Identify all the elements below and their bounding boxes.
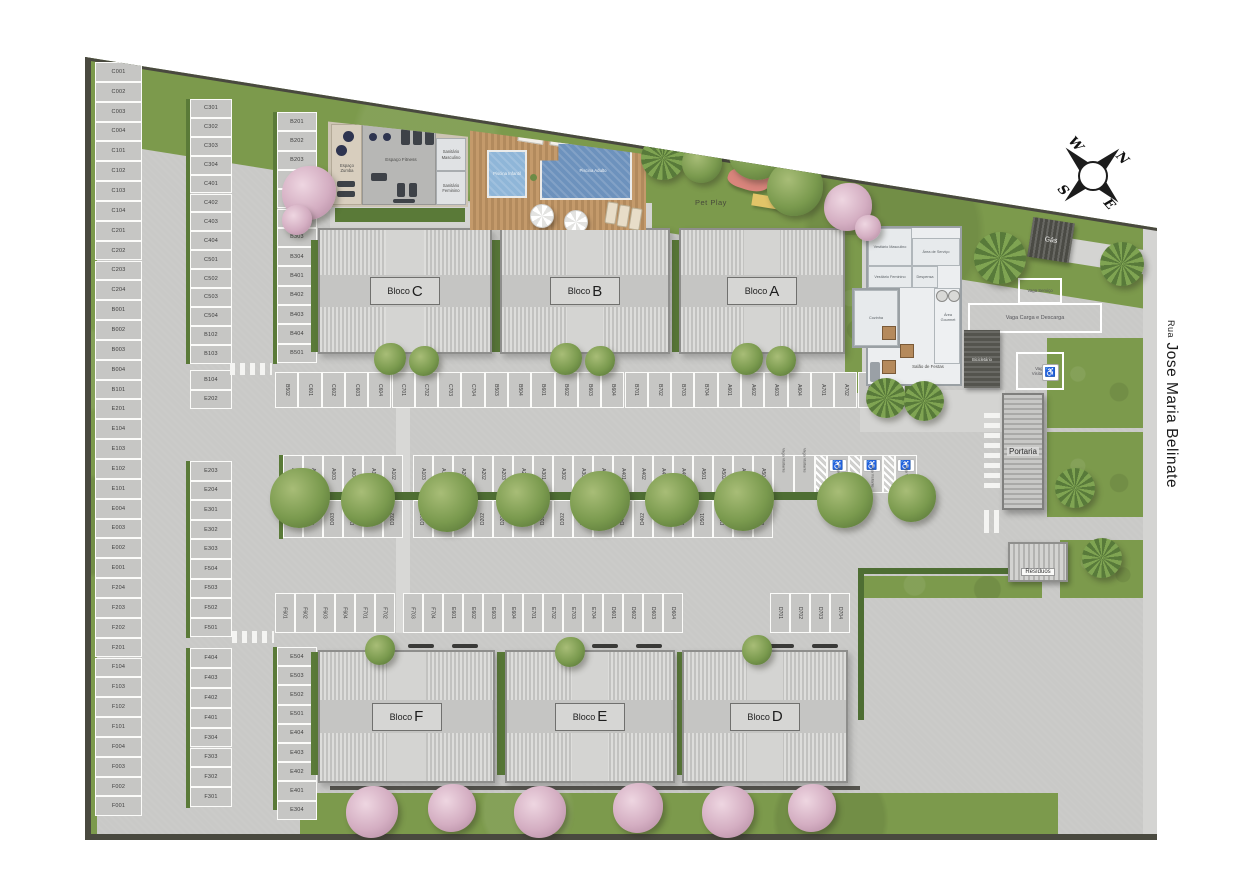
stall-label: E404: [290, 730, 304, 736]
changing-room-female: Vestiário Feminino: [868, 266, 912, 288]
entrance-canopy: [408, 644, 434, 648]
parking-stall: A701: [811, 372, 834, 408]
parking-stall: C002: [95, 82, 142, 102]
parking-stall: E201: [95, 399, 142, 419]
parking-stall: F503: [190, 579, 232, 599]
entrance-canopy: [592, 644, 618, 648]
stall-label: C503: [204, 294, 218, 300]
dining-table: [900, 344, 914, 358]
stall-label: F503: [204, 585, 217, 591]
stall-label: E403: [290, 750, 304, 756]
bike-rack-shed: Bicicletário: [964, 330, 1000, 388]
stall-label: B102: [204, 332, 218, 338]
stall-label: F302: [204, 774, 217, 780]
parking-stall: C504: [190, 307, 232, 326]
building-bloco-e: BlocoE: [505, 650, 675, 783]
parking-stall: E602: [463, 593, 483, 633]
parking-stall: F401: [190, 708, 232, 728]
parking-stall: E304: [277, 801, 317, 820]
stall-label: F601: [282, 607, 288, 618]
parking-stall: F504: [190, 559, 232, 579]
parking-stall: D704: [830, 593, 850, 633]
gas-shed: Gás: [1027, 217, 1075, 263]
parking-stall: B703: [671, 372, 694, 408]
crosswalk: [230, 363, 272, 375]
parking-stall: F701: [355, 593, 375, 633]
stall-label: F704: [430, 607, 436, 618]
exercise-bike: [383, 133, 391, 141]
stall-label: C604: [377, 384, 383, 396]
stall-label: C201: [112, 228, 126, 234]
stall-label: D703: [817, 607, 823, 619]
parking-stall: C501: [190, 250, 232, 269]
stall-label: E602: [470, 607, 476, 619]
parking-stall: C304: [190, 156, 232, 175]
stall-label: A003: [330, 468, 336, 480]
changing-room-female-label: Vestiário Feminino: [874, 275, 905, 280]
parking-stall: C403: [190, 212, 232, 231]
parking-stall: C004: [95, 122, 142, 142]
stall-label: B603: [587, 384, 593, 396]
stall-label: A701: [820, 384, 826, 396]
stall-label: B101: [112, 387, 126, 393]
retaining-edge: [330, 786, 860, 790]
parking-stall: F004: [95, 737, 142, 757]
parking-stall: F604: [335, 593, 355, 633]
stall-label: B001: [112, 307, 126, 313]
block-label-prefix: Bloco: [745, 286, 768, 296]
parking-stall: E202: [190, 390, 232, 410]
parking-stall: E104: [95, 419, 142, 439]
parking-stall: F704: [423, 593, 443, 633]
exercise-bike: [369, 133, 377, 141]
parking-stall: F304: [190, 728, 232, 748]
stall-label: E402: [290, 769, 304, 775]
crosswalk: [984, 510, 1004, 533]
stall-label: E501: [290, 711, 304, 717]
parking-stall: Vaga Visitante: [773, 455, 794, 493]
crosswalk: [232, 631, 274, 643]
visitor-stall-label: Vaga Visitante: [781, 448, 785, 473]
stall-label: A102: [390, 468, 396, 480]
parking-stall: C703: [438, 372, 461, 408]
parking-stall: E002: [95, 538, 142, 558]
kitchen-label: Cozinha: [869, 316, 883, 321]
block-label-prefix: Bloco: [387, 286, 410, 296]
parking-stall: B103: [190, 345, 232, 364]
stall-label: F002: [112, 784, 125, 790]
block-label-prefix: Bloco: [573, 712, 596, 722]
parking-stall: F602: [295, 593, 315, 633]
adult-pool-label: Piscina Adulto: [580, 168, 607, 173]
compass-rose: W N S E: [1040, 125, 1150, 220]
compass-circle: [1078, 161, 1108, 191]
parking-stall: B201: [277, 112, 317, 131]
stall-label: E204: [204, 487, 218, 493]
building-label-plate: BlocoD: [730, 703, 800, 731]
stall-label: C504: [204, 313, 218, 319]
stall-label: D202: [480, 513, 486, 525]
fitness-label: Espaço Fitness: [385, 157, 417, 163]
stall-label: F303: [204, 754, 217, 760]
stall-label: C003: [112, 109, 126, 115]
parking-stall: B701: [625, 372, 648, 408]
stall-label: B003: [112, 347, 126, 353]
parking-stall: F204: [95, 578, 142, 598]
stall-label: C202: [112, 248, 126, 254]
parking-stall: E701: [523, 593, 543, 633]
stall-label: B303: [290, 234, 304, 240]
stall-label: F103: [112, 684, 125, 690]
stall-label: D704: [837, 607, 843, 619]
street-name: Rua Jose Maria Belinate: [1162, 320, 1180, 488]
parking-stall: C103: [95, 181, 142, 201]
parking-stall: F404: [190, 648, 232, 668]
parking-stall: C003: [95, 102, 142, 122]
parking-stall: D603: [643, 593, 663, 633]
stall-label: C401: [204, 181, 218, 187]
block-label-prefix: Bloco: [390, 712, 413, 722]
palm-tree: [641, 136, 685, 180]
stall-label: E601: [450, 607, 456, 619]
stall-label: D102: [390, 513, 396, 525]
block-label-letter: F: [414, 708, 423, 725]
stall-label: A402: [640, 468, 646, 480]
stall-label: D602: [630, 607, 636, 619]
stall-label: A302: [560, 468, 566, 480]
building-bloco-c: BlocoC: [318, 228, 492, 354]
parking-stall: F003: [95, 757, 142, 777]
stall-label: E101: [112, 486, 126, 492]
parking-stall: F103: [95, 677, 142, 697]
stall-label: C104: [112, 208, 126, 214]
stall-label: F703: [410, 607, 416, 618]
stall-label: D402: [640, 513, 646, 525]
parking-stall: F603: [315, 593, 335, 633]
service-area-label: Área de Serviço: [922, 250, 949, 255]
parking-stall: C502: [190, 269, 232, 288]
restroom-female: Sanitário Feminino: [436, 171, 466, 205]
weight-machine: [409, 183, 417, 197]
parking-stall: F301: [190, 787, 232, 807]
palm-tree: [1100, 242, 1144, 286]
gym-equipment: [337, 181, 355, 187]
parking-stall: F001: [95, 796, 142, 816]
parking-stall: F104: [95, 658, 142, 678]
parking-stall: E702: [543, 593, 563, 633]
parking-stall: B102: [190, 326, 232, 345]
parking-stall: B002: [95, 320, 142, 340]
stall-label: C601: [307, 384, 313, 396]
block-label-prefix: Bloco: [568, 286, 591, 296]
stall-label: C703: [447, 384, 453, 396]
stall-label: B401: [290, 273, 304, 279]
perimeter-wall-left: [85, 57, 91, 840]
round-table: [936, 290, 948, 302]
stall-label: A501: [700, 468, 706, 480]
exercise-ball: [336, 145, 347, 156]
parking-stall: C701: [392, 372, 415, 408]
restroom-male: Sanitário Masculino: [436, 138, 466, 171]
parking-stall: F302: [190, 767, 232, 787]
gas-label: Gás: [1044, 236, 1058, 245]
stall-label: E203: [204, 468, 218, 474]
parking-stall: F702: [375, 593, 395, 633]
stall-label: B504: [517, 384, 523, 396]
building-label-plate: BlocoE: [555, 703, 625, 731]
stall-label: C204: [112, 287, 126, 293]
service-stall-label: Vaga Serviço: [1027, 288, 1052, 293]
stall-label: F603: [322, 607, 328, 618]
stall-label: E302: [204, 527, 218, 533]
parking-stall: B202: [277, 131, 317, 150]
parking-stall: C702: [415, 372, 438, 408]
parking-stall: C204: [95, 280, 142, 300]
service-parking-stall: Vaga Serviço: [1018, 278, 1062, 304]
hedge: [186, 648, 190, 808]
street-title: Jose Maria Belinate: [1163, 342, 1180, 488]
stall-label: E001: [112, 565, 126, 571]
stall-label: D302: [560, 513, 566, 525]
stall-label: B104: [204, 377, 218, 383]
parking-stall: C102: [95, 161, 142, 181]
stall-label: F203: [112, 605, 125, 611]
stall-label: E604: [510, 607, 516, 619]
building-label-plate: BlocoB: [550, 277, 620, 305]
stall-label: C402: [204, 200, 218, 206]
stall-label: E304: [290, 807, 304, 813]
parking-stall: F703: [403, 593, 423, 633]
parking-stall: D602: [623, 593, 643, 633]
exercise-ball: [343, 131, 354, 142]
weight-bench: [371, 173, 387, 181]
stall-label: F201: [112, 645, 125, 651]
parking-stall: D702: [790, 593, 810, 633]
palm-tree: [974, 232, 1026, 284]
stall-label: C403: [204, 219, 218, 225]
treadmill: [401, 129, 410, 145]
parking-stall: C601: [298, 372, 321, 408]
stall-label: E704: [590, 607, 596, 619]
visitor-accessible-stall: Vaga Visitante ♿: [1016, 352, 1064, 390]
block-label-letter: B: [592, 283, 602, 300]
parking-stall: B504: [508, 372, 531, 408]
parking-stall: E203: [190, 461, 232, 481]
pet-play-label: Pet Play: [695, 198, 727, 207]
stall-label: B404: [290, 331, 304, 337]
parking-stall: C401: [190, 175, 232, 194]
stall-label: F501: [204, 625, 217, 631]
visitor-stall-label: Vaga Visitante: [802, 448, 806, 473]
entrance-canopy: [636, 644, 662, 648]
parking-stall: A604: [788, 372, 811, 408]
stall-label: C501: [204, 257, 218, 263]
parking-stall: F601: [275, 593, 295, 633]
stall-label: E701: [530, 607, 536, 619]
crosswalk: [984, 410, 1000, 488]
stall-label: B004: [112, 367, 126, 373]
parking-stall: C503: [190, 288, 232, 307]
stall-label: A601: [726, 384, 732, 396]
parking-stall: C402: [190, 194, 232, 213]
stall-label: C102: [112, 168, 126, 174]
stall-label: E002: [112, 545, 126, 551]
parking-stall: C603: [345, 372, 368, 408]
stall-label: B304: [290, 254, 304, 260]
stall-label: D701: [777, 607, 783, 619]
service-area: Área de Serviço: [912, 238, 960, 266]
stall-label: D604: [670, 607, 676, 619]
stall-label: F502: [204, 605, 217, 611]
stall-label: F003: [112, 764, 125, 770]
pool-lounger: [628, 207, 642, 230]
parking-stall: E303: [190, 539, 232, 559]
stall-label: C004: [112, 128, 126, 134]
stall-label: F004: [112, 744, 125, 750]
stall-label: C602: [330, 384, 336, 396]
gatehouse: Portaria: [1002, 393, 1044, 510]
stall-label: F604: [342, 607, 348, 618]
stall-label: B704: [703, 384, 709, 396]
stall-label: A602: [750, 384, 756, 396]
parking-stall: F402: [190, 688, 232, 708]
stall-label: C002: [112, 89, 126, 95]
parking-stall: B502: [275, 372, 298, 408]
stall-label: B604: [610, 384, 616, 396]
parking-stall: C101: [95, 141, 142, 161]
parking-stall: F502: [190, 598, 232, 618]
parking-stall: F403: [190, 668, 232, 688]
parking-stall: C604: [368, 372, 391, 408]
stall-label: B502: [284, 384, 290, 396]
stall-label: B002: [112, 327, 126, 333]
block-label-letter: E: [597, 708, 607, 725]
stall-label: C404: [204, 238, 218, 244]
block-label-letter: C: [412, 283, 423, 300]
stall-label: F602: [302, 607, 308, 618]
stall-label: F304: [204, 735, 217, 741]
stall-label: C203: [112, 267, 126, 273]
parking-stall: F303: [190, 748, 232, 768]
kids-pool-label: Piscina Infantil: [493, 171, 521, 176]
stall-label: E102: [112, 466, 126, 472]
hedge: [273, 647, 277, 810]
parking-stall: B003: [95, 340, 142, 360]
site-plan-canvas: C001C002C003C004C101C102C103C104C201C202…: [0, 0, 1242, 877]
parking-stall: E101: [95, 479, 142, 499]
stall-label: F101: [112, 724, 125, 730]
parking-stall: D601: [603, 593, 623, 633]
stall-label: C103: [112, 188, 126, 194]
parking-stall: C104: [95, 201, 142, 221]
stall-label: B201: [290, 119, 304, 125]
block-label-prefix: Bloco: [747, 712, 770, 722]
parking-stall: F102: [95, 697, 142, 717]
hedge: [186, 99, 190, 364]
hedge: [858, 568, 864, 720]
stall-label: F204: [112, 585, 125, 591]
adult-pool: Piscina Adulto: [540, 142, 632, 200]
stall-label: D702: [797, 607, 803, 619]
hedge: [311, 240, 318, 352]
parking-stall: E301: [190, 500, 232, 520]
stall-label: F403: [204, 675, 217, 681]
entrance-canopy: [452, 644, 478, 648]
stall-label: C603: [354, 384, 360, 396]
stall-label: F504: [204, 566, 217, 572]
parking-stall: F002: [95, 777, 142, 797]
loading-parking-stall: Vaga Carga e Descarga: [968, 303, 1102, 333]
stall-label: A604: [796, 384, 802, 396]
parking-stall: E003: [95, 519, 142, 539]
parking-stall: C404: [190, 231, 232, 250]
party-hall: Vestiário Masculino Área de Serviço Vest…: [850, 224, 964, 390]
building-label-plate: BlocoF: [372, 703, 442, 731]
parking-stall: E601: [443, 593, 463, 633]
parking-stall: E401: [277, 781, 317, 800]
parking-stall: C202: [95, 241, 142, 261]
parking-stall: A602: [741, 372, 764, 408]
stall-label: C001: [112, 69, 126, 75]
parking-stall: F203: [95, 598, 142, 618]
stall-label: D003: [330, 513, 336, 525]
hedge: [335, 208, 465, 222]
stall-label: A702: [843, 384, 849, 396]
stall-label: E303: [204, 546, 218, 552]
walkway: [1143, 228, 1157, 840]
building-bloco-a: BlocoA: [679, 228, 845, 354]
stall-label: C101: [112, 148, 126, 154]
building-bloco-b: BlocoB: [500, 228, 670, 354]
waste-shed-label: Resíduos: [1021, 568, 1054, 576]
parking-stall: A603: [764, 372, 787, 408]
parking-stall: B101: [95, 380, 142, 400]
parking-stall: Vaga Visitante: [794, 455, 815, 493]
hedge: [311, 652, 318, 775]
parking-stall: D703: [810, 593, 830, 633]
stall-label: C702: [423, 384, 429, 396]
gatehouse-label: Portaria: [1007, 447, 1039, 456]
hedge: [273, 112, 277, 364]
hedge: [186, 461, 190, 638]
stall-label: E104: [112, 426, 126, 432]
pantry: Despensa: [912, 266, 938, 288]
palm-tree: [904, 381, 944, 421]
building-bloco-d: BlocoD: [682, 650, 848, 783]
stall-label: D501: [700, 513, 706, 525]
entrance-canopy: [812, 644, 838, 648]
palm-tree: [866, 378, 906, 418]
stall-label: E703: [570, 607, 576, 619]
stall-label: E401: [290, 788, 304, 794]
parking-stall: F202: [95, 618, 142, 638]
bike-rack-label: Bicicletário: [972, 357, 992, 362]
barbell-rack: [393, 199, 415, 203]
parking-stall: D604: [663, 593, 683, 633]
party-hall-label: Salão de Festas: [912, 364, 944, 369]
parking-stall: E001: [95, 558, 142, 578]
gourmet-area-label: Área Gourmet: [937, 313, 959, 322]
stall-label: A603: [773, 384, 779, 396]
stall-label: F401: [204, 715, 217, 721]
building-label-plate: BlocoC: [370, 277, 440, 305]
zumba-label: Espaço Zumba: [334, 163, 360, 173]
stall-label: B403: [290, 312, 304, 318]
wheelchair-icon: ♿: [1042, 364, 1059, 381]
fitness-room: Espaço Fitness: [362, 124, 436, 205]
stall-label: C301: [204, 105, 218, 111]
stall-label: E504: [290, 654, 304, 660]
